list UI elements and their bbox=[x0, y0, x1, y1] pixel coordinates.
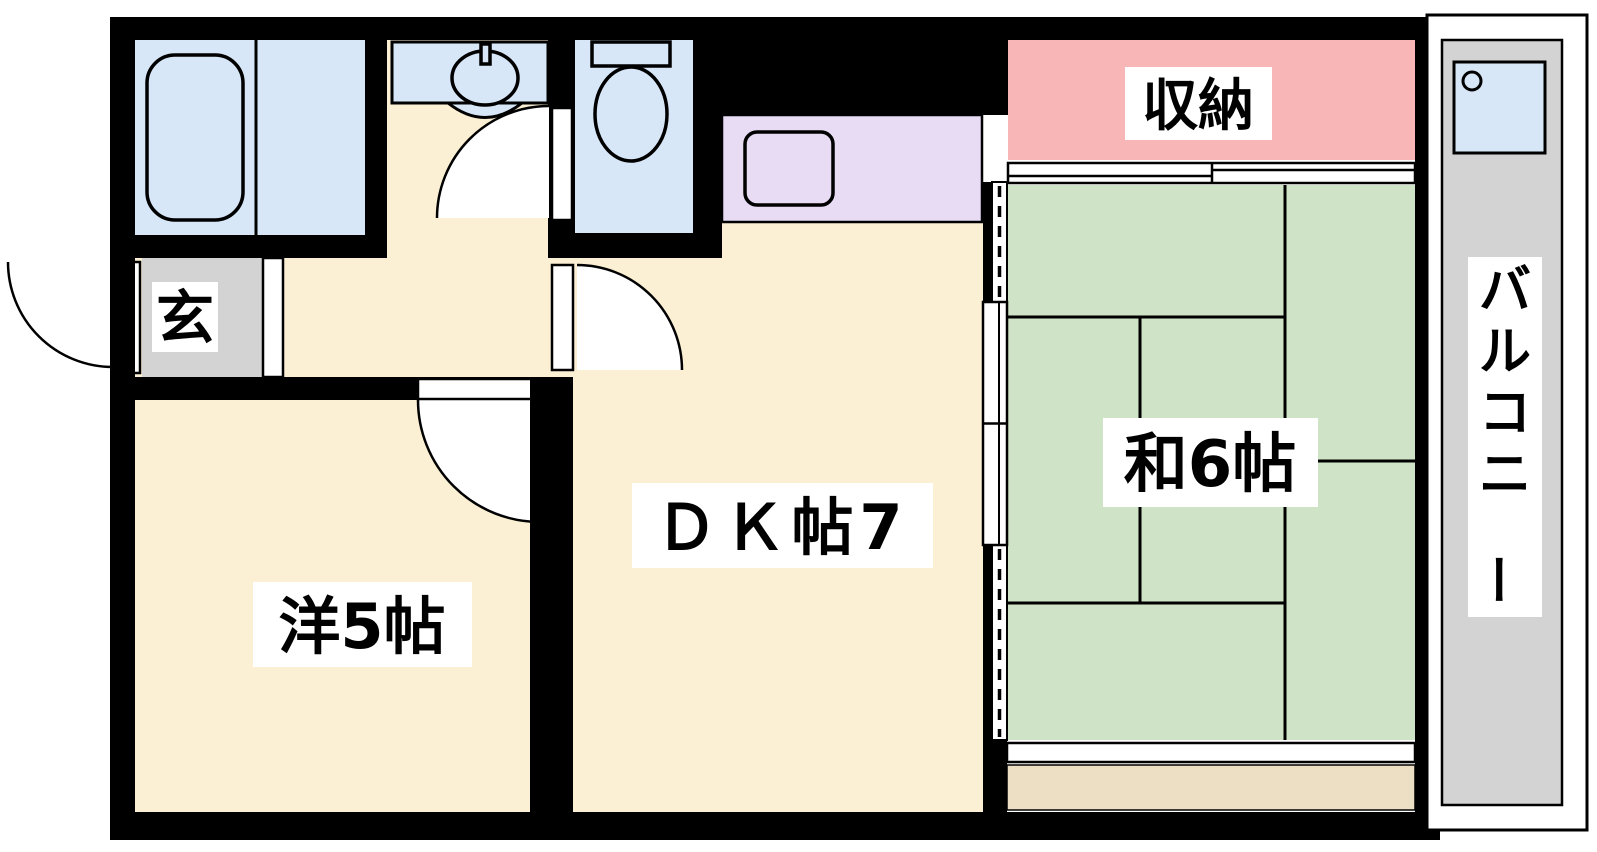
washroom bbox=[257, 40, 365, 235]
toilet-right-wall bbox=[693, 17, 722, 258]
storage-sliding-door bbox=[1008, 163, 1415, 183]
japanese-room-label: 和6帖 bbox=[1124, 428, 1297, 502]
western-room-right-wall bbox=[530, 377, 573, 812]
partition-bottom-wall bbox=[983, 740, 1007, 812]
entrance-door-swing bbox=[8, 262, 113, 367]
veranda-strip bbox=[1007, 765, 1415, 810]
washer-pan-icon bbox=[1454, 62, 1545, 153]
entrance-label: 玄 bbox=[156, 284, 214, 352]
balcony: バルコニー bbox=[1427, 15, 1587, 830]
entrance-step-frame bbox=[263, 258, 283, 377]
dk-label: ＤＫ帖7 bbox=[655, 491, 908, 564]
western-room-door-leaf bbox=[418, 379, 540, 399]
sliding-door-partition bbox=[983, 182, 1007, 740]
wall-above-kitchen bbox=[693, 17, 1008, 115]
toilet-icon bbox=[592, 42, 670, 161]
kitchen-sink-icon bbox=[745, 132, 833, 205]
western-room-label: 洋5帖 bbox=[278, 590, 445, 663]
bottom-wall bbox=[110, 812, 1418, 840]
floor-plan: バルコニー 玄 洋5帖 ＤＫ帖7 和6帖 収納 bbox=[0, 0, 1597, 852]
washroom-door-leaf bbox=[552, 108, 572, 220]
toilet-door-leaf bbox=[552, 265, 573, 370]
bathtub-icon bbox=[147, 55, 243, 220]
window-band bbox=[1007, 743, 1415, 762]
storage-label: 収納 bbox=[1142, 74, 1254, 139]
left-wall bbox=[110, 17, 135, 840]
